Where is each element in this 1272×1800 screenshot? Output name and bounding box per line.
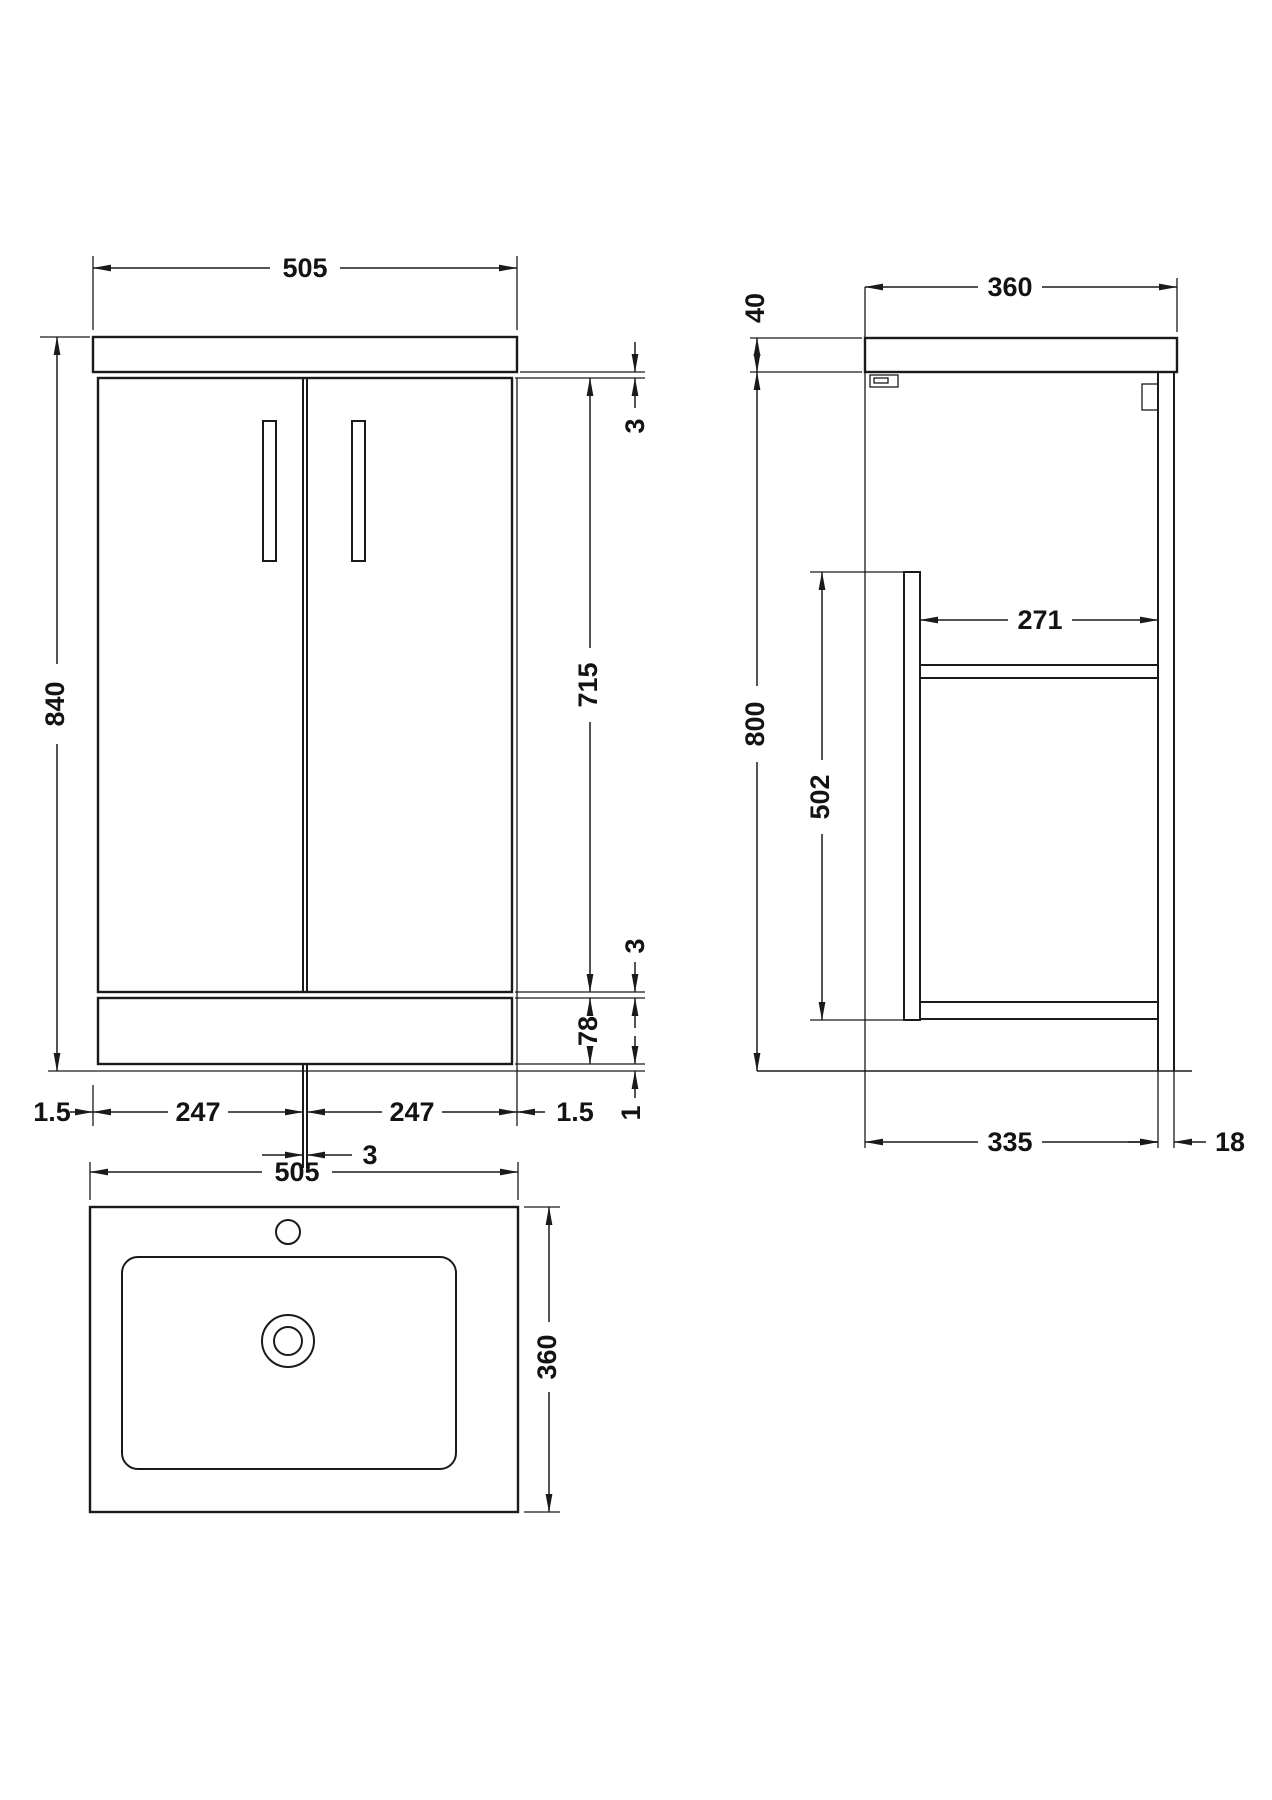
plan-dim-basin-depth-label: 360 [532, 1334, 562, 1379]
technical-drawing: 505 840 715 3 3 78 [0, 0, 1272, 1800]
side-dim-panel-height: 502 [805, 572, 835, 1020]
front-dim-floor-gap: 1 [616, 1036, 646, 1121]
front-dim-counter-width-label: 505 [282, 253, 327, 283]
side-dim-counter-depth: 360 [865, 272, 1177, 302]
front-countertop [93, 337, 517, 372]
plan-view: 505 360 [90, 1157, 562, 1512]
front-plinth [98, 998, 512, 1064]
side-view: 360 40 800 502 271 335 [740, 272, 1245, 1157]
plan-basin-outline [90, 1207, 518, 1512]
front-cabinet-doors [98, 378, 512, 992]
side-shelf [920, 665, 1158, 678]
plan-dim-basin-depth: 360 [532, 1207, 562, 1512]
plan-waste-outer [262, 1315, 314, 1367]
front-dim-overall-height-label: 840 [40, 681, 70, 726]
plan-dim-basin-width: 505 [90, 1157, 518, 1187]
front-dim-center-gap-label: 3 [362, 1140, 377, 1170]
side-hanging-bracket [1142, 384, 1158, 410]
front-extension-lines [40, 256, 645, 1126]
plan-dim-basin-width-label: 505 [274, 1157, 319, 1187]
front-right-door-handle [352, 421, 365, 561]
front-dim-right-door-label: 247 [389, 1097, 434, 1127]
side-front-bracket-slot [874, 378, 888, 383]
side-dim-back-panel: 18 [1128, 1127, 1245, 1157]
front-dim-right-overhang-label: 1.5 [556, 1097, 594, 1127]
front-dim-overall-height: 840 [40, 337, 70, 1071]
front-dim-bottom-gap: 3 [620, 938, 650, 1028]
side-dim-carcass-height-label: 800 [740, 701, 770, 746]
front-dim-door-height-label: 715 [573, 662, 603, 707]
plan-basin-bowl [122, 1257, 456, 1469]
plan-extension-lines [90, 1162, 560, 1512]
front-left-door-handle [263, 421, 276, 561]
side-dim-back-panel-label: 18 [1215, 1127, 1245, 1157]
front-dim-door-height: 715 [573, 378, 603, 992]
front-dim-left-door-label: 247 [175, 1097, 220, 1127]
side-dim-counter-thickness: 40 [740, 293, 770, 372]
side-dim-carcass-height: 800 [740, 372, 770, 1071]
front-dim-floor-gap-label: 1 [616, 1105, 646, 1120]
side-door-panel [904, 572, 920, 1020]
front-door-gap [303, 378, 307, 992]
side-dim-counter-thickness-label: 40 [740, 293, 770, 323]
front-dim-left-overhang-label: 1.5 [33, 1097, 71, 1127]
front-dim-counter-width: 505 [93, 253, 517, 283]
front-view: 505 840 715 3 3 78 [33, 253, 650, 1170]
front-dim-bottom-gap-label: 3 [620, 938, 650, 953]
side-dim-internal-depth: 271 [920, 605, 1158, 635]
front-center-gap-extension [303, 1064, 307, 1168]
side-countertop [865, 338, 1177, 372]
side-back-panel [1142, 372, 1174, 1071]
front-dim-plinth-height: 78 [573, 998, 603, 1064]
plan-tap-hole [276, 1220, 300, 1244]
front-dim-top-gap: 3 [620, 342, 650, 434]
side-dim-base-depth-label: 335 [987, 1127, 1032, 1157]
side-dim-base-depth: 335 [865, 1127, 1158, 1157]
front-dim-bottom-chain: 1.5 247 247 1.5 [33, 1097, 594, 1127]
front-dim-plinth-height-label: 78 [573, 1016, 603, 1046]
plan-waste-inner [274, 1327, 302, 1355]
side-dim-internal-depth-label: 271 [1017, 605, 1062, 635]
drawing-canvas: 505 840 715 3 3 78 [0, 0, 1272, 1800]
side-cabinet-bottom [920, 1002, 1158, 1019]
side-extension-lines [750, 278, 1177, 1148]
side-dim-panel-height-label: 502 [805, 774, 835, 819]
side-dim-counter-depth-label: 360 [987, 272, 1032, 302]
front-dim-top-gap-label: 3 [620, 418, 650, 433]
